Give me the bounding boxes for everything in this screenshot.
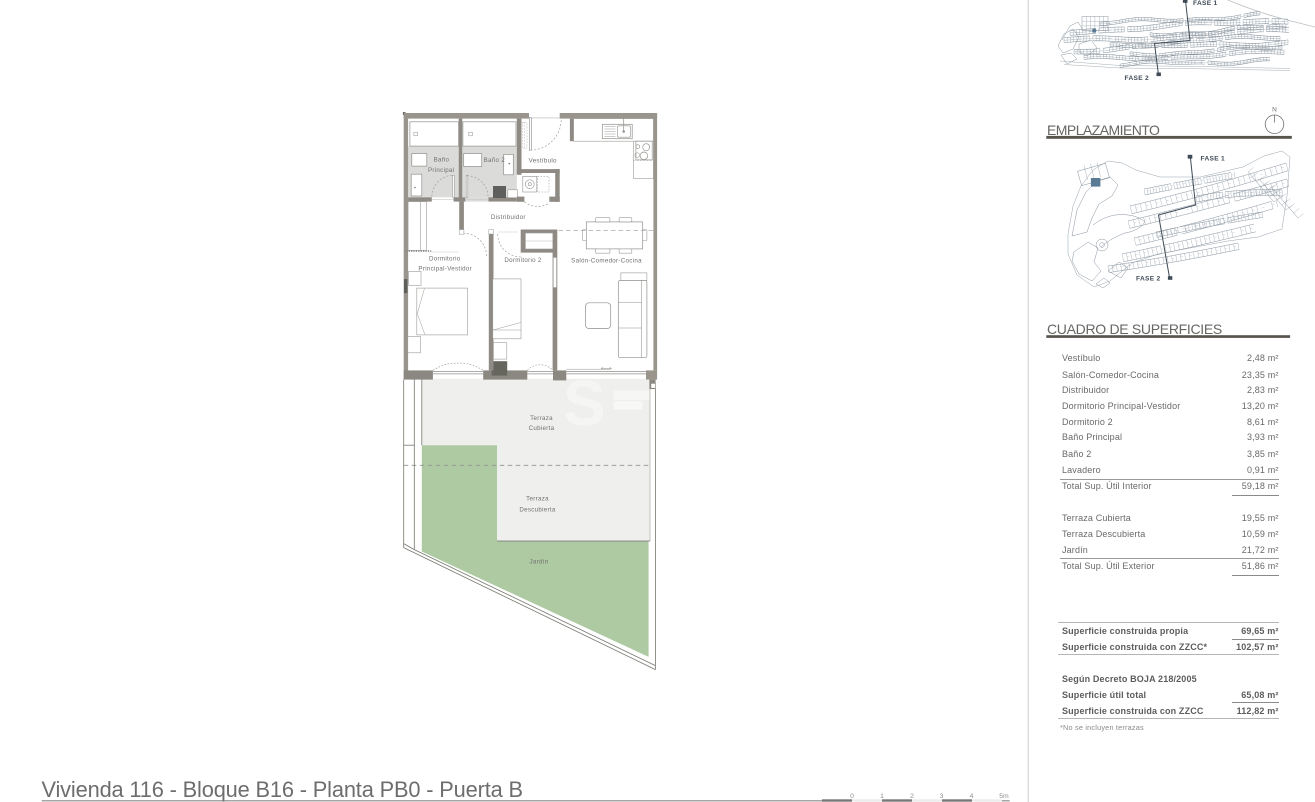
svg-text:5m: 5m — [999, 793, 1009, 800]
svg-text:3: 3 — [940, 793, 944, 800]
svg-text:FASE 1: FASE 1 — [1201, 156, 1226, 163]
svg-text:1: 1 — [880, 793, 884, 800]
svg-text:FASE 2: FASE 2 — [1125, 75, 1150, 82]
svg-text:N: N — [1272, 107, 1277, 114]
svg-text:0: 0 — [850, 793, 854, 800]
svg-text:FASE 1: FASE 1 — [1193, 0, 1218, 7]
svg-text:FASE 2: FASE 2 — [1136, 276, 1161, 283]
svg-text:4: 4 — [970, 793, 974, 800]
svg-text:2: 2 — [910, 793, 914, 800]
